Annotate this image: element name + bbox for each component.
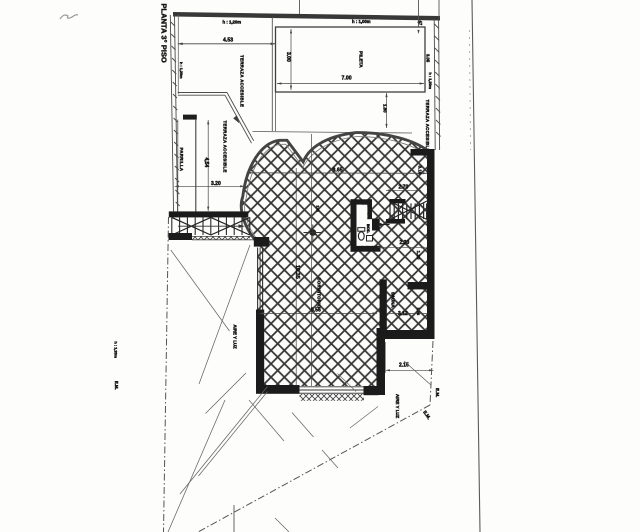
svg-text:10.35: 10.35: [294, 265, 300, 279]
svg-text:1.26: 1.26: [416, 308, 421, 317]
svg-text:4.53: 4.53: [223, 38, 233, 44]
svg-text:h : 1,20m: h : 1,20m: [428, 73, 432, 90]
svg-text:TERRAZA ACCESIBLE: TERRAZA ACCESIBLE: [425, 100, 430, 152]
svg-text:3.00: 3.00: [285, 52, 291, 62]
svg-text:2.45: 2.45: [316, 206, 320, 212]
svg-text:3.20: 3.20: [211, 181, 221, 187]
svg-text:3.12: 3.12: [398, 311, 408, 317]
svg-text:E.M.: E.M.: [435, 388, 440, 397]
svg-text:AIRE Y LUZ: AIRE Y LUZ: [395, 394, 400, 419]
svg-text:AIRE Y LUZ: AIRE Y LUZ: [233, 325, 238, 350]
svg-text:5.56: 5.56: [311, 308, 321, 314]
svg-text:4,54: 4,54: [203, 158, 209, 168]
svg-text:1.20: 1.20: [416, 251, 421, 260]
svg-text:47: 47: [418, 21, 423, 26]
svg-text:2.70: 2.70: [399, 185, 409, 191]
svg-text:h : 1,00m: h : 1,00m: [352, 19, 371, 24]
svg-text:3.10: 3.10: [418, 166, 423, 175]
svg-text:PILETA: PILETA: [358, 51, 364, 68]
svg-text:1.80: 1.80: [383, 104, 388, 113]
svg-text:2.15: 2.15: [399, 363, 409, 369]
svg-text:DORMITORIO: DORMITORIO: [317, 278, 322, 309]
svg-text:TERRAZA ACCESIBLE: TERRAZA ACCESIBLE: [223, 121, 228, 173]
svg-text:h : 1,20m: h : 1,20m: [223, 20, 242, 25]
svg-text:h : 1,20m: h : 1,20m: [179, 62, 183, 79]
svg-text:8.65: 8.65: [333, 167, 343, 173]
svg-text:INOD.: INOD.: [366, 224, 370, 233]
svg-text:h : 1,20m: h : 1,20m: [114, 342, 118, 359]
svg-text:7.00: 7.00: [342, 76, 352, 82]
svg-text:TERRAZA ACCESIBLE: TERRAZA ACCESIBLE: [240, 55, 245, 107]
svg-text:3.05: 3.05: [426, 54, 431, 63]
svg-text:E.M.: E.M.: [114, 381, 119, 390]
svg-text:2.20: 2.20: [400, 240, 410, 246]
svg-text:SAUNA: SAUNA: [391, 292, 396, 308]
svg-text:PARRILLA: PARRILLA: [179, 148, 184, 172]
svg-text:PLANTA 3° PISO: PLANTA 3° PISO: [160, 4, 169, 64]
